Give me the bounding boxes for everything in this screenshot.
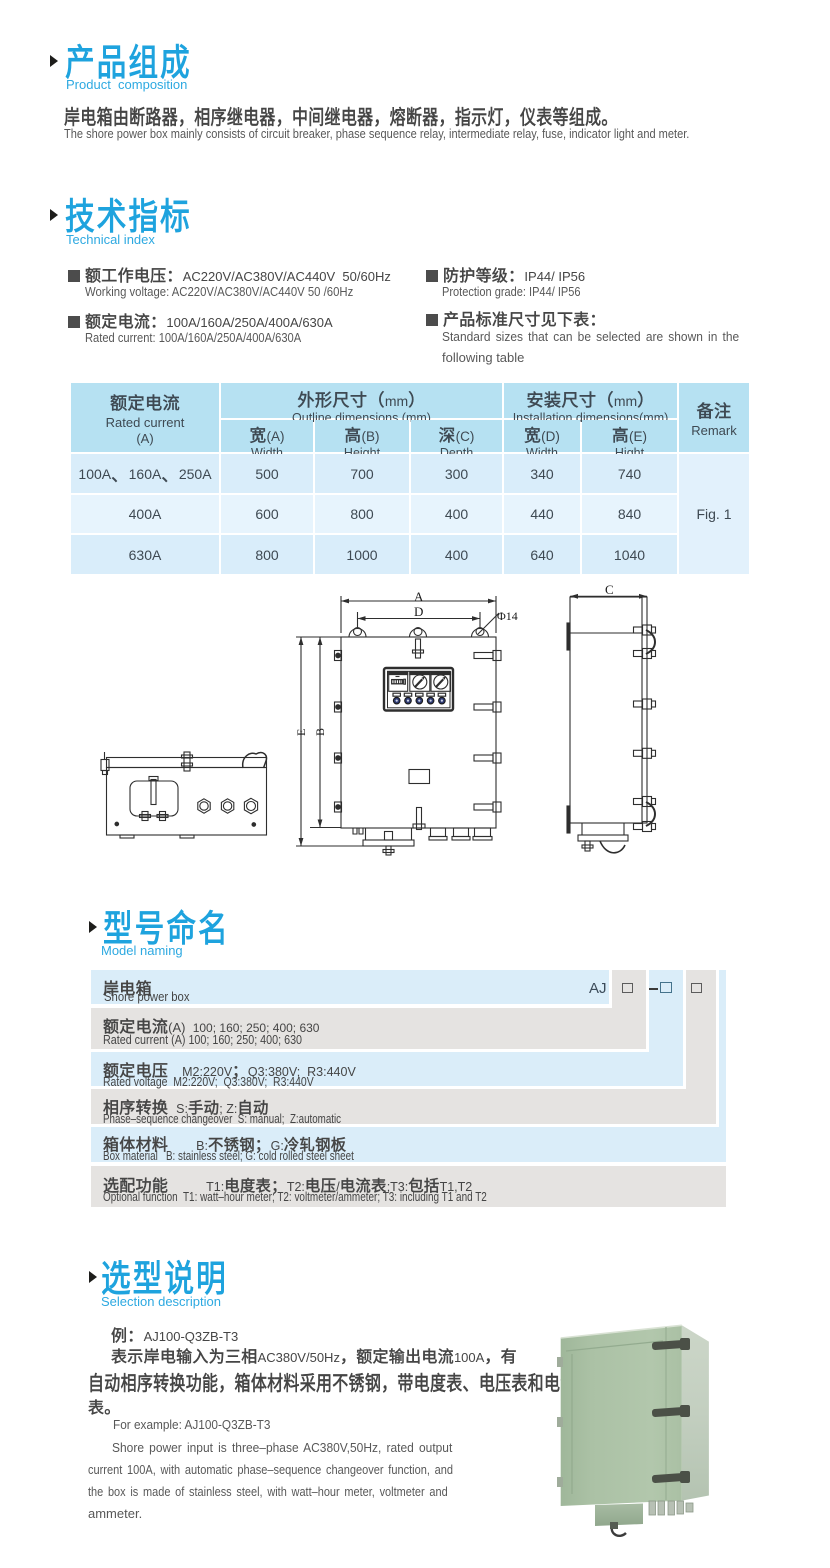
svg-text:C: C [605, 582, 614, 597]
svg-text:D: D [414, 604, 423, 619]
svg-text:E: E [294, 729, 308, 736]
svg-text:Φ14: Φ14 [497, 609, 518, 623]
svg-text:A: A [414, 589, 424, 604]
svg-text:B: B [313, 728, 327, 736]
